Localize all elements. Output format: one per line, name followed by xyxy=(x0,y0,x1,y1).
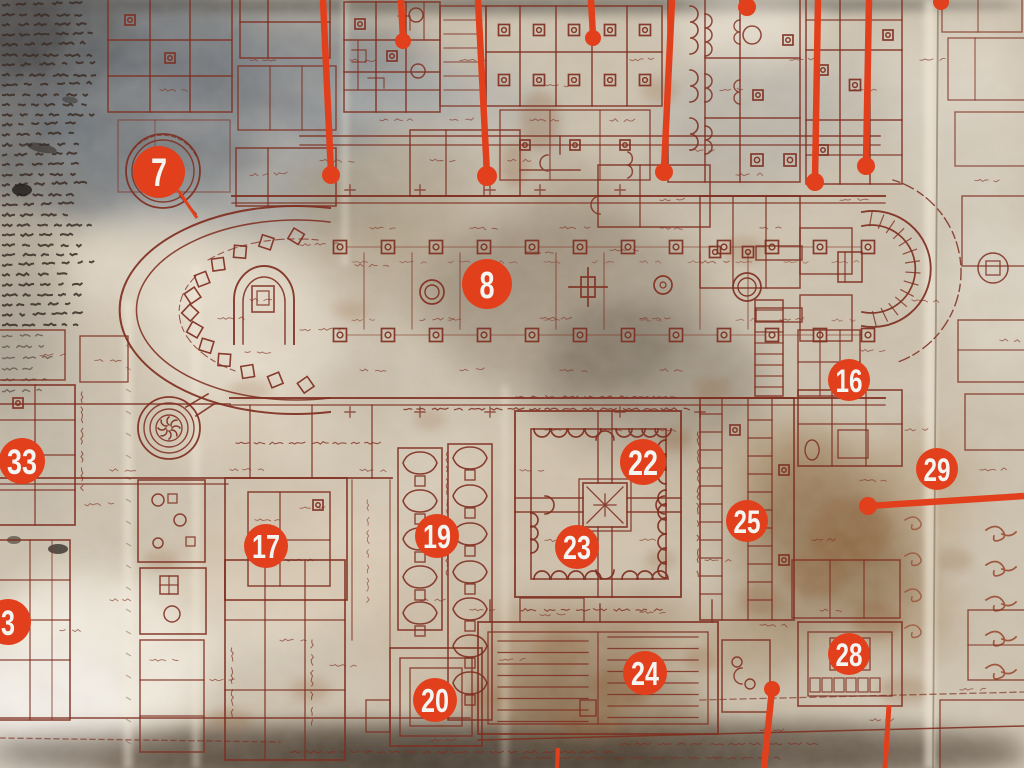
svg-text:7: 7 xyxy=(151,151,167,195)
svg-text:8: 8 xyxy=(480,265,495,307)
svg-text:25: 25 xyxy=(734,504,761,540)
svg-text:24: 24 xyxy=(631,655,659,692)
svg-text:33: 33 xyxy=(7,443,37,482)
svg-text:23: 23 xyxy=(563,529,591,566)
svg-text:3: 3 xyxy=(1,604,15,643)
svg-text:29: 29 xyxy=(924,452,951,488)
svg-text:20: 20 xyxy=(421,682,449,719)
svg-text:17: 17 xyxy=(252,528,280,565)
svg-text:28: 28 xyxy=(836,637,863,673)
svg-text:22: 22 xyxy=(628,444,658,483)
svg-text:19: 19 xyxy=(423,518,451,555)
svg-text:16: 16 xyxy=(836,363,863,399)
